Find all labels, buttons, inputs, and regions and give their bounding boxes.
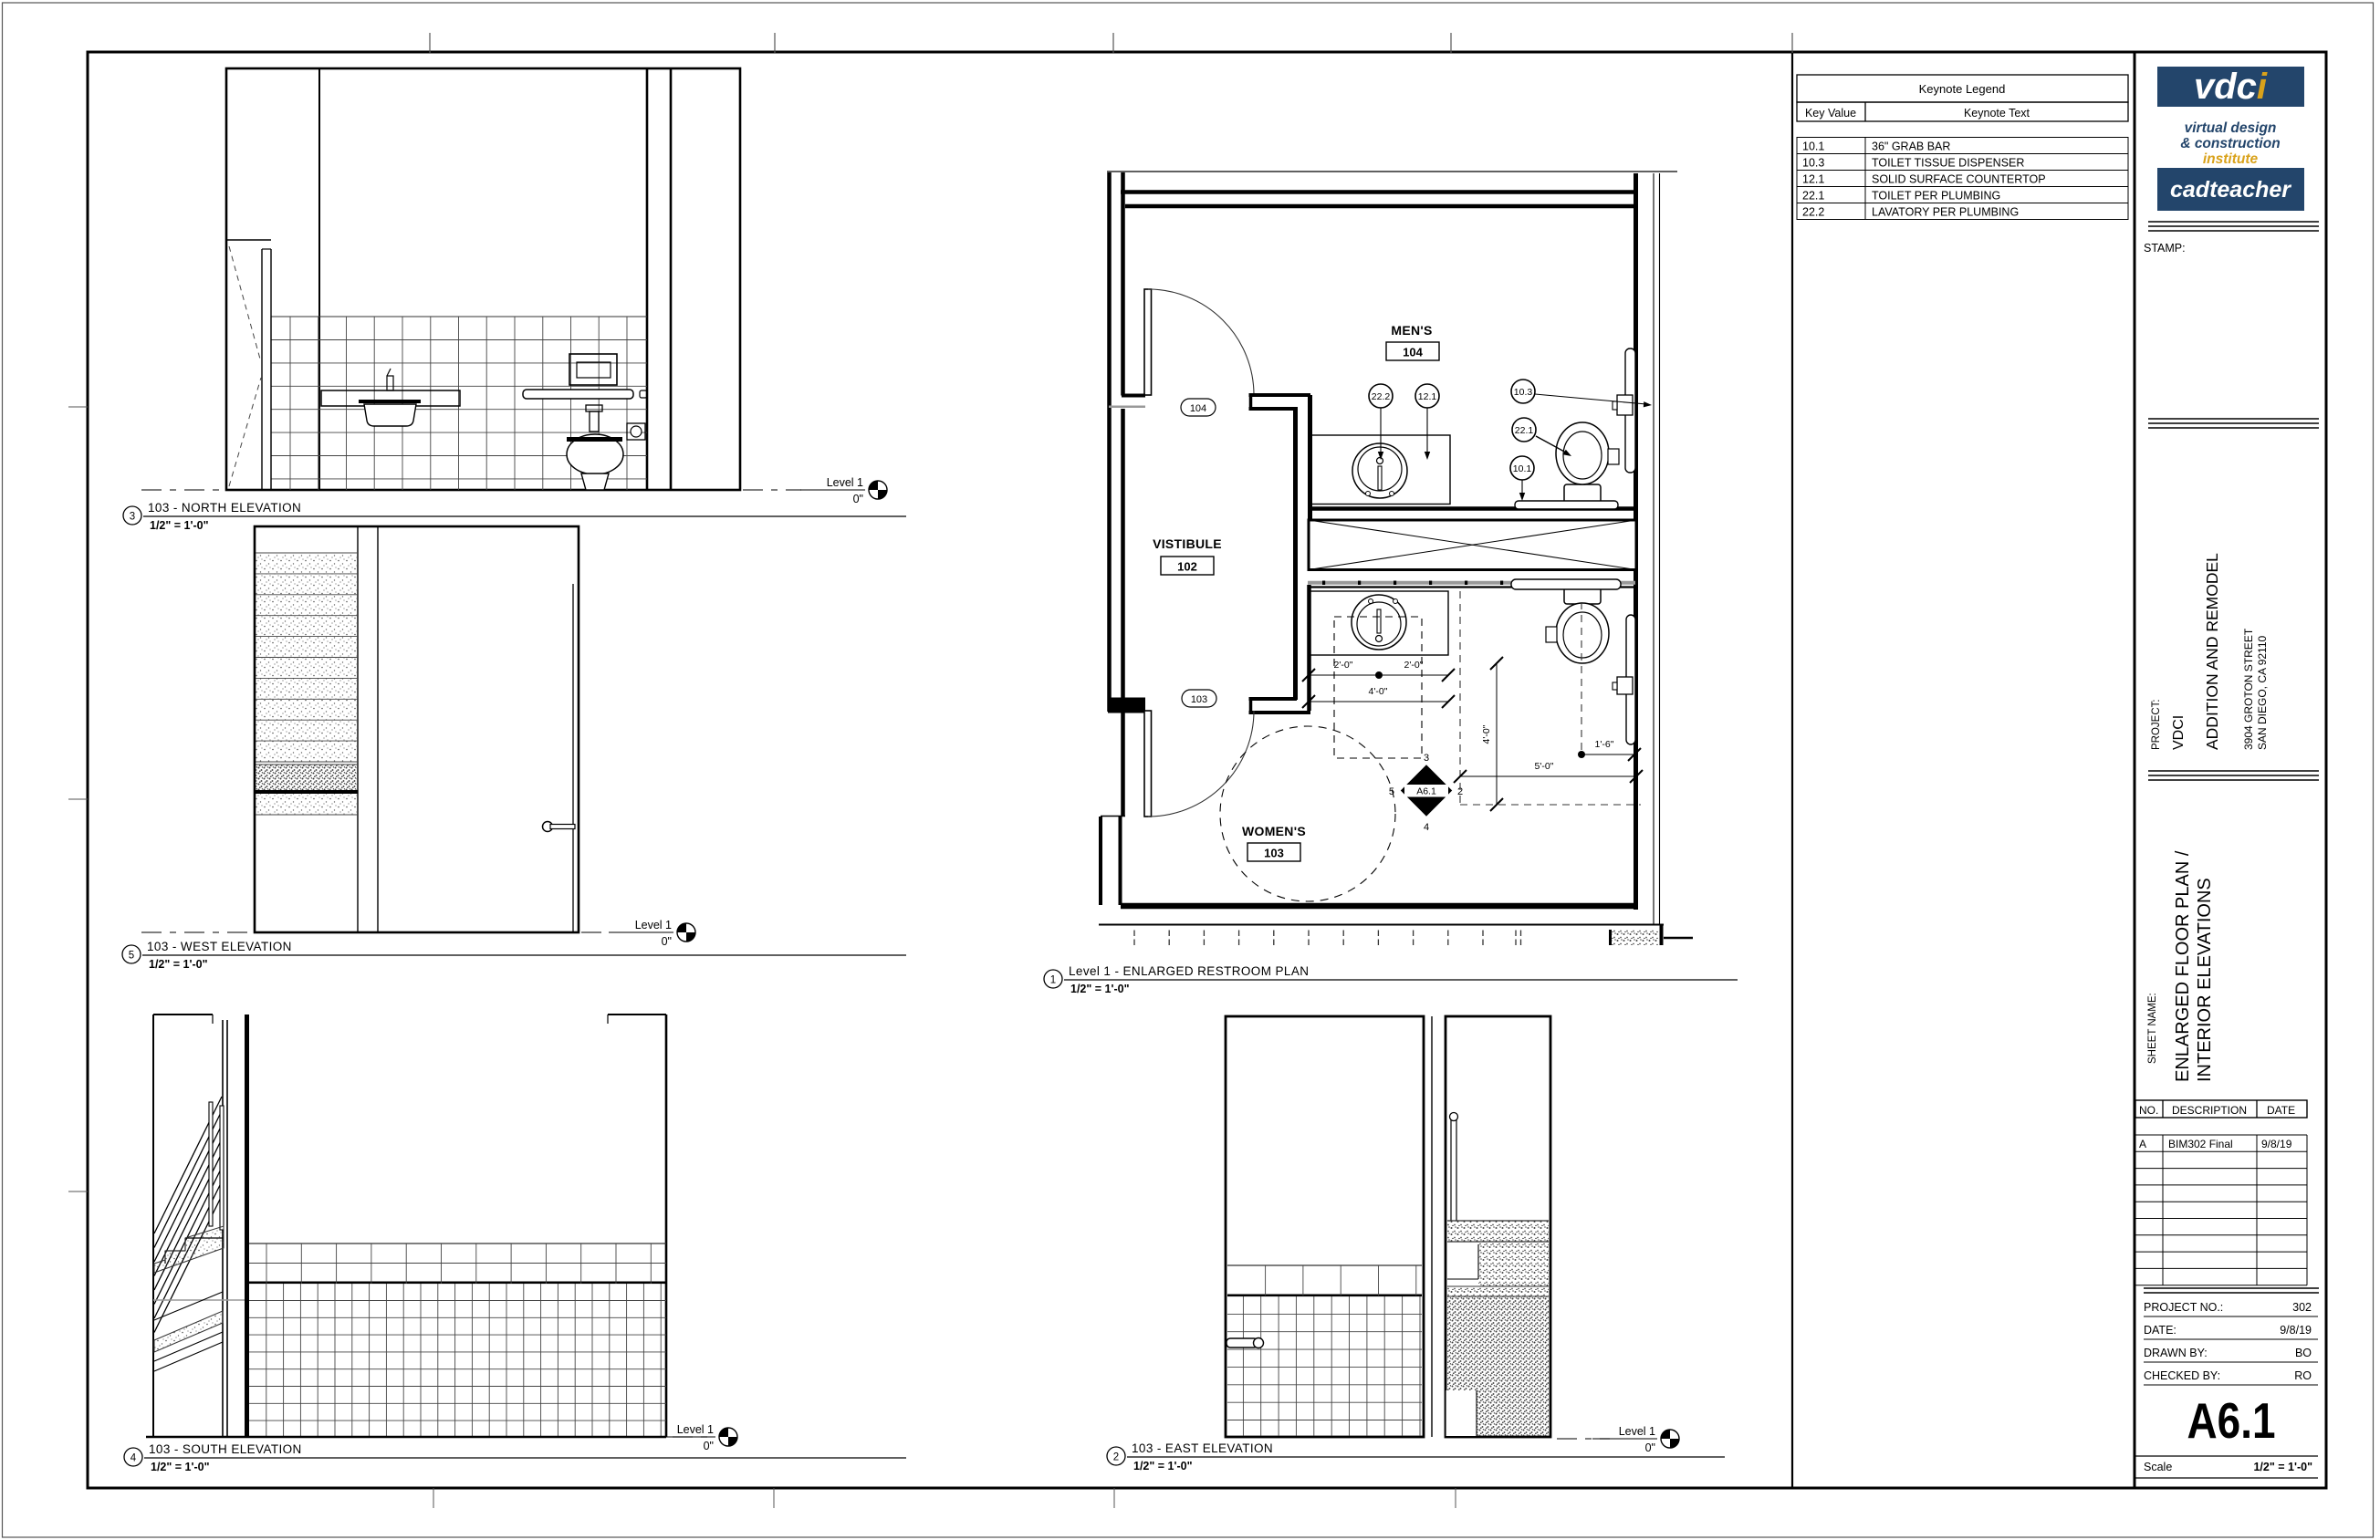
svg-text:2'-0": 2'-0" <box>1334 660 1353 671</box>
svg-text:Keynote Legend: Keynote Legend <box>1919 82 2006 96</box>
svg-text:2: 2 <box>1113 1452 1119 1463</box>
svg-text:SHEET NAME:: SHEET NAME: <box>2147 993 2158 1064</box>
svg-text:1/2" = 1'-0": 1/2" = 1'-0" <box>150 519 209 532</box>
svg-text:Level 1: Level 1 <box>1619 1425 1655 1438</box>
svg-text:10.1: 10.1 <box>1513 463 1532 474</box>
svg-text:9/8/19: 9/8/19 <box>2280 1324 2312 1337</box>
svg-text:104: 104 <box>1190 403 1206 414</box>
svg-text:1/2" = 1'-0": 1/2" = 1'-0" <box>2253 1461 2312 1473</box>
svg-text:DESCRIPTION: DESCRIPTION <box>2172 1104 2247 1117</box>
svg-text:1'-6": 1'-6" <box>1595 739 1614 750</box>
svg-text:22.1: 22.1 <box>1802 190 1824 203</box>
svg-text:104: 104 <box>1403 346 1423 359</box>
svg-text:10.1: 10.1 <box>1802 140 1824 153</box>
svg-text:Level 1: Level 1 <box>827 476 863 489</box>
svg-text:BO: BO <box>2295 1347 2312 1359</box>
svg-text:ADDITION AND REMODEL: ADDITION AND REMODEL <box>2203 553 2221 750</box>
svg-text:Scale: Scale <box>2144 1461 2172 1473</box>
svg-text:4: 4 <box>130 1453 137 1464</box>
svg-text:22.1: 22.1 <box>1515 425 1534 436</box>
svg-text:INTERIOR ELEVATIONS: INTERIOR ELEVATIONS <box>2195 878 2215 1082</box>
svg-text:10.3: 10.3 <box>1802 157 1824 170</box>
svg-text:SAN DIEGO, CA 92110: SAN DIEGO, CA 92110 <box>2256 636 2269 750</box>
svg-text:DATE:: DATE: <box>2144 1324 2176 1337</box>
svg-text:2'-0": 2'-0" <box>1404 660 1424 671</box>
svg-text:1/2" = 1'-0": 1/2" = 1'-0" <box>1133 1460 1193 1472</box>
svg-text:BIM302 Final: BIM302 Final <box>2168 1138 2233 1150</box>
svg-text:A6.1: A6.1 <box>2187 1392 2276 1449</box>
svg-text:PROJECT NO.:: PROJECT NO.: <box>2144 1301 2223 1314</box>
svg-text:cadteacher: cadteacher <box>2170 177 2291 203</box>
svg-text:CHECKED BY:: CHECKED BY: <box>2144 1369 2220 1382</box>
svg-text:Keynote Text: Keynote Text <box>1964 107 2030 120</box>
svg-text:0": 0" <box>1645 1441 1655 1454</box>
svg-text:2: 2 <box>1457 786 1463 797</box>
svg-text:Level 1: Level 1 <box>635 919 672 931</box>
svg-text:1: 1 <box>1050 975 1056 986</box>
svg-text:22.2: 22.2 <box>1802 206 1824 219</box>
svg-text:103 - NORTH ELEVATION: 103 - NORTH ELEVATION <box>148 501 301 515</box>
svg-text:DRAWN BY:: DRAWN BY: <box>2144 1347 2208 1359</box>
svg-text:4: 4 <box>1424 822 1429 833</box>
svg-text:virtual design: virtual design <box>2185 120 2277 136</box>
svg-text:LAVATORY PER PLUMBING: LAVATORY PER PLUMBING <box>1872 206 2019 219</box>
svg-text:102: 102 <box>1177 560 1197 574</box>
svg-text:DATE: DATE <box>2267 1104 2295 1117</box>
svg-text:103 - EAST ELEVATION: 103 - EAST ELEVATION <box>1132 1441 1273 1455</box>
svg-text:10.3: 10.3 <box>1514 387 1533 398</box>
svg-text:1/2" = 1'-0": 1/2" = 1'-0" <box>149 958 208 971</box>
svg-text:5: 5 <box>129 951 134 962</box>
svg-text:institute: institute <box>2203 151 2259 167</box>
svg-text:5'-0": 5'-0" <box>1535 761 1554 772</box>
svg-text:5: 5 <box>1389 786 1394 797</box>
svg-text:3904 GROTON STREET: 3904 GROTON STREET <box>2242 628 2255 750</box>
svg-text:WOMEN'S: WOMEN'S <box>1242 824 1306 838</box>
svg-text:4'-0": 4'-0" <box>1369 686 1388 697</box>
svg-text:3: 3 <box>1424 753 1429 764</box>
svg-text:103 - SOUTH ELEVATION: 103 - SOUTH ELEVATION <box>149 1442 302 1456</box>
svg-text:ENLARGED FLOOR PLAN /: ENLARGED FLOOR PLAN / <box>2173 850 2193 1082</box>
svg-text:STAMP:: STAMP: <box>2144 242 2186 255</box>
svg-text:302: 302 <box>2292 1301 2312 1314</box>
svg-text:22.2: 22.2 <box>1372 391 1391 402</box>
svg-text:103: 103 <box>1191 694 1207 705</box>
svg-text:& construction: & construction <box>2180 136 2280 151</box>
svg-text:SOLID SURFACE COUNTERTOP: SOLID SURFACE COUNTERTOP <box>1872 173 2046 186</box>
svg-text:12.1: 12.1 <box>1802 173 1824 186</box>
svg-text:0": 0" <box>662 935 672 948</box>
svg-text:A: A <box>2139 1138 2146 1150</box>
svg-text:TOILET TISSUE DISPENSER: TOILET TISSUE DISPENSER <box>1872 157 2024 170</box>
svg-text:NO.: NO. <box>2139 1104 2158 1117</box>
svg-text:Level 1: Level 1 <box>677 1423 714 1436</box>
svg-text:vdci: vdci <box>2194 67 2268 107</box>
svg-text:1/2" = 1'-0": 1/2" = 1'-0" <box>151 1461 210 1473</box>
svg-text:9/8/19: 9/8/19 <box>2261 1138 2292 1150</box>
svg-text:VISTIBULE: VISTIBULE <box>1153 536 1222 551</box>
svg-text:103: 103 <box>1264 847 1284 860</box>
svg-text:VDCI: VDCI <box>2171 715 2187 750</box>
svg-text:MEN'S: MEN'S <box>1391 323 1432 338</box>
svg-text:3: 3 <box>130 512 135 523</box>
svg-text:TOILET PER PLUMBING: TOILET PER PLUMBING <box>1872 190 2000 203</box>
svg-text:36" GRAB BAR: 36" GRAB BAR <box>1872 140 1950 153</box>
svg-text:Key Value: Key Value <box>1805 107 1856 120</box>
svg-text:A6.1: A6.1 <box>1416 786 1436 797</box>
svg-text:RO: RO <box>2294 1369 2312 1382</box>
svg-text:PROJECT:: PROJECT: <box>2151 699 2162 750</box>
svg-text:0": 0" <box>853 493 863 505</box>
svg-text:Level 1 - ENLARGED RESTROOM PL: Level 1 - ENLARGED RESTROOM PLAN <box>1069 964 1309 978</box>
svg-text:0": 0" <box>704 1440 714 1452</box>
svg-text:1/2" = 1'-0": 1/2" = 1'-0" <box>1070 983 1130 995</box>
svg-text:12.1: 12.1 <box>1418 391 1437 402</box>
svg-text:103 - WEST ELEVATION: 103 - WEST ELEVATION <box>147 940 292 953</box>
svg-text:4'-0": 4'-0" <box>1481 724 1492 744</box>
